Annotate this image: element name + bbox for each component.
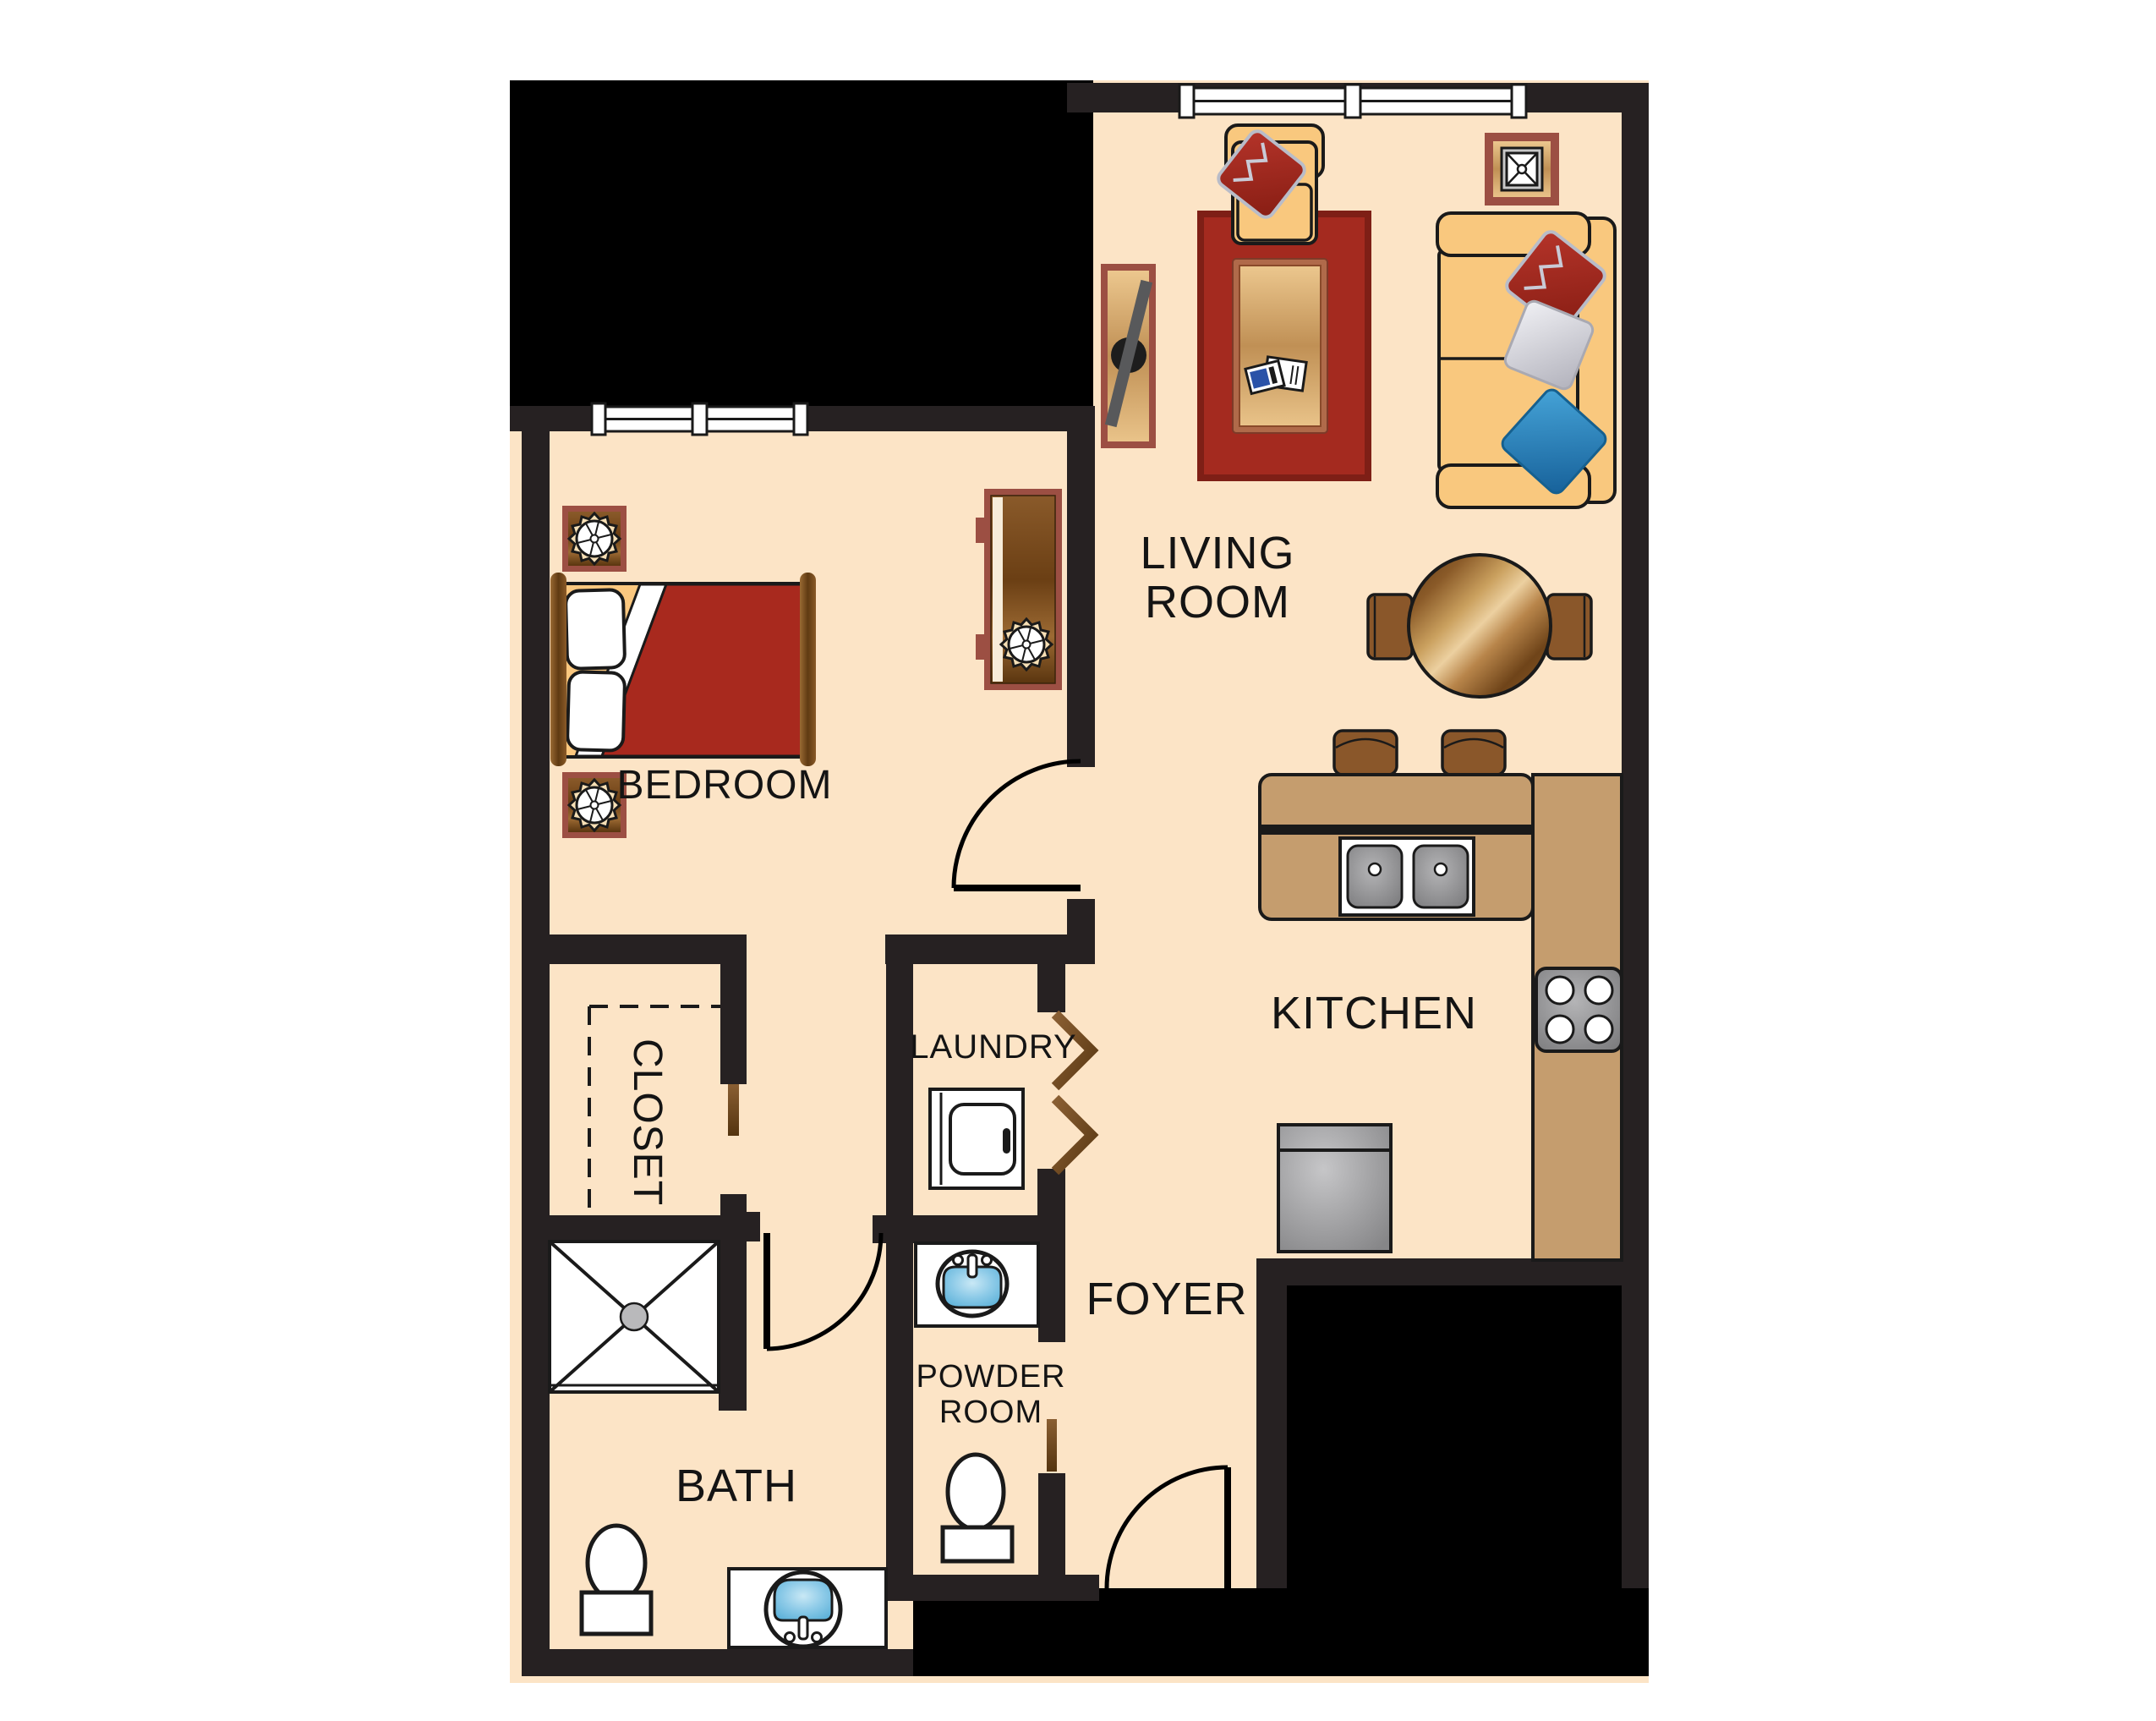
- wall-powder-bottom: [886, 1575, 1099, 1601]
- wall-shower-right: [719, 1241, 747, 1411]
- washer-icon: [930, 1089, 1023, 1188]
- coffee-table: [1233, 259, 1327, 433]
- bath-sink-faucet: [799, 1617, 807, 1639]
- living-room-label-line1: LIVING: [1140, 528, 1294, 578]
- tv-console: [1101, 264, 1156, 448]
- exterior-block-top-left: [510, 80, 1093, 408]
- wall-closet-top: [550, 934, 747, 964]
- powder-vanity: [916, 1243, 1038, 1326]
- bed-headboard: [550, 573, 566, 766]
- closet-pocket-door: [728, 1084, 739, 1136]
- wall-bath-door-stub: [747, 1212, 760, 1241]
- dining-chair-left: [1368, 595, 1412, 659]
- wall-laundry-left: [886, 964, 913, 1601]
- double-sink-icon: [1340, 838, 1474, 915]
- laundry: LAUNDRY: [910, 1014, 1092, 1188]
- end-table: [1485, 133, 1559, 206]
- laundry-label: LAUNDRY: [910, 1028, 1076, 1066]
- foyer-label: FOYER: [1086, 1274, 1247, 1324]
- dining-chair-right: [1547, 595, 1591, 659]
- wall-closet-right-upper: [720, 964, 747, 1084]
- bedroom-label: BEDROOM: [616, 763, 832, 808]
- bar-stool-right: [1442, 731, 1505, 775]
- nightstand-top: [562, 506, 627, 572]
- wall-powder-right-upper: [1038, 1241, 1065, 1342]
- wall-right: [1622, 83, 1649, 1588]
- powder-sink-faucet: [968, 1255, 977, 1277]
- bath-sink-basin: [774, 1580, 832, 1620]
- living-room-label-line2: ROOM: [1145, 577, 1290, 628]
- armchair: [1215, 125, 1323, 244]
- exterior-block-bottom-right: [1287, 1285, 1622, 1588]
- bath-vanity: [729, 1569, 886, 1647]
- dresser: [976, 489, 1062, 690]
- bed-pillow-1: [566, 589, 625, 669]
- floor-plan-page: LIVING ROOM: [0, 0, 2156, 1721]
- bed-pillow-2: [567, 671, 625, 751]
- closet-label: CLOSET: [625, 1039, 670, 1206]
- bedroom-window: [592, 403, 807, 435]
- floor-plan-canvas: LIVING ROOM: [0, 0, 2156, 1721]
- foyer: FOYER: [1086, 1274, 1247, 1324]
- wall-laundry-right-lower: [1037, 1169, 1065, 1215]
- bed-footboard: [800, 573, 816, 766]
- island-counter-edge: [1261, 825, 1531, 835]
- wall-laundry-top: [885, 934, 1095, 964]
- dining-table: [1409, 555, 1551, 697]
- wall-bath-bottom: [522, 1649, 913, 1676]
- wall-laundry-right-upper: [1037, 964, 1065, 1012]
- bed: [550, 573, 816, 766]
- bar-stool-left: [1334, 731, 1397, 775]
- powder-pocket-door: [1047, 1419, 1057, 1472]
- exterior-strip-bottom: [1093, 1588, 1649, 1676]
- wall-bedroom-right-upper: [1067, 406, 1095, 767]
- sofa: [1437, 213, 1615, 507]
- wall-left: [522, 406, 550, 1676]
- dishwasher-icon: [1278, 1125, 1391, 1252]
- kitchen-label: KITCHEN: [1271, 988, 1477, 1039]
- bath-toilet-icon: [582, 1526, 651, 1634]
- wall-closet-bottom: [550, 1215, 760, 1241]
- shower-icon: [550, 1241, 719, 1392]
- living-room-window: [1179, 85, 1526, 118]
- powder-room-label-line1: POWDER: [917, 1359, 1066, 1395]
- shower-drain: [621, 1303, 648, 1330]
- wall-powder-right-lower: [1038, 1473, 1065, 1575]
- bath-label: BATH: [676, 1461, 797, 1511]
- wall-laundry-powder-divider: [886, 1215, 1065, 1241]
- stove-icon: [1536, 968, 1622, 1051]
- powder-room-label-line2: ROOM: [939, 1395, 1042, 1430]
- exterior-strip-below-powder: [913, 1601, 1099, 1676]
